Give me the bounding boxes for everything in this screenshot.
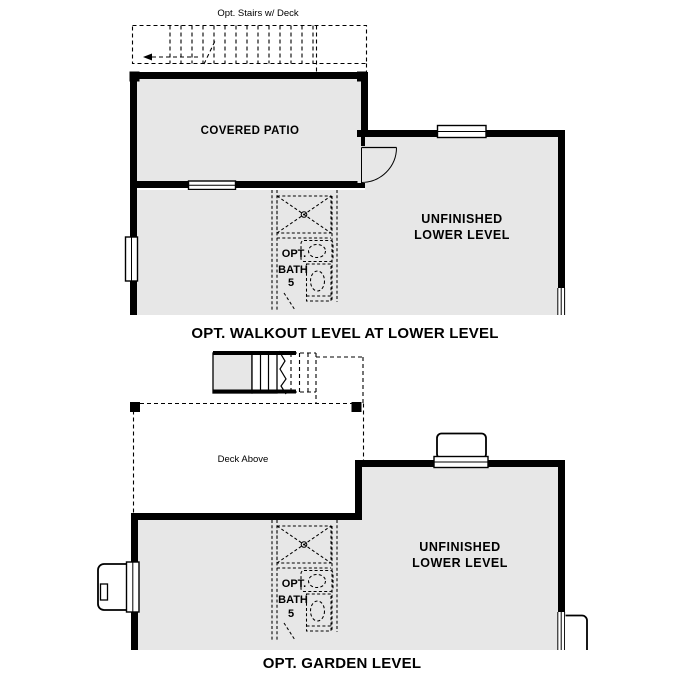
stair-break-line bbox=[279, 351, 286, 394]
stairs-deck-label: Opt. Stairs w/ Deck bbox=[217, 8, 299, 19]
plan-title-garden: OPT. GARDEN LEVEL bbox=[263, 655, 421, 672]
stair-landing bbox=[213, 353, 252, 393]
lower-level-label-line1: UNFINISHED bbox=[419, 540, 500, 554]
opt-stairs-deck-outline bbox=[133, 26, 367, 74]
garden-stairs bbox=[213, 351, 363, 403]
stair-treads bbox=[181, 26, 313, 64]
bath-label-line1: OPT. bbox=[282, 578, 306, 590]
lower-level-top-window bbox=[438, 126, 487, 138]
covered-patio-label: COVERED PATIO bbox=[201, 125, 300, 137]
bath-label-line1: OPT. bbox=[282, 248, 306, 260]
deck-above-label: Deck Above bbox=[218, 454, 269, 465]
corner-post bbox=[352, 402, 362, 412]
garden-lower-level-room bbox=[98, 434, 587, 651]
lower-level-label-line2: LOWER LEVEL bbox=[412, 556, 508, 570]
plan-garden-level: Deck Above UNFINISHED LOWER LEVEL OPT. B… bbox=[98, 351, 587, 672]
floorplan-drawing: Opt. Stairs w/ Deck COVERED PATIO UNFINI… bbox=[0, 0, 687, 687]
stair-break-line bbox=[204, 41, 215, 64]
bath-label-line3: 5 bbox=[288, 608, 294, 620]
corner-post bbox=[130, 402, 140, 412]
lower-level-label-line2: LOWER LEVEL bbox=[414, 228, 510, 242]
corner-post bbox=[357, 72, 367, 82]
lower-level-label-line1: UNFINISHED bbox=[421, 212, 502, 226]
plan-walkout-level: Opt. Stairs w/ Deck COVERED PATIO UNFINI… bbox=[126, 8, 566, 342]
plan-title-walkout: OPT. WALKOUT LEVEL AT LOWER LEVEL bbox=[191, 325, 498, 342]
corner-post bbox=[130, 72, 140, 82]
floorplan-sheet: Opt. Stairs w/ Deck COVERED PATIO UNFINI… bbox=[0, 0, 687, 687]
lower-level-right-window bbox=[557, 288, 565, 315]
left-window-well bbox=[98, 562, 139, 612]
bath-label-line2: BATH bbox=[278, 264, 308, 276]
bath-label-line3: 5 bbox=[288, 277, 294, 289]
stair-direction-arrow bbox=[143, 54, 152, 61]
top-window-well bbox=[434, 434, 488, 468]
right-window-well bbox=[557, 612, 587, 650]
lower-level-left-window bbox=[126, 237, 138, 281]
bath-label-line2: BATH bbox=[278, 594, 308, 606]
patio-window bbox=[189, 181, 236, 190]
